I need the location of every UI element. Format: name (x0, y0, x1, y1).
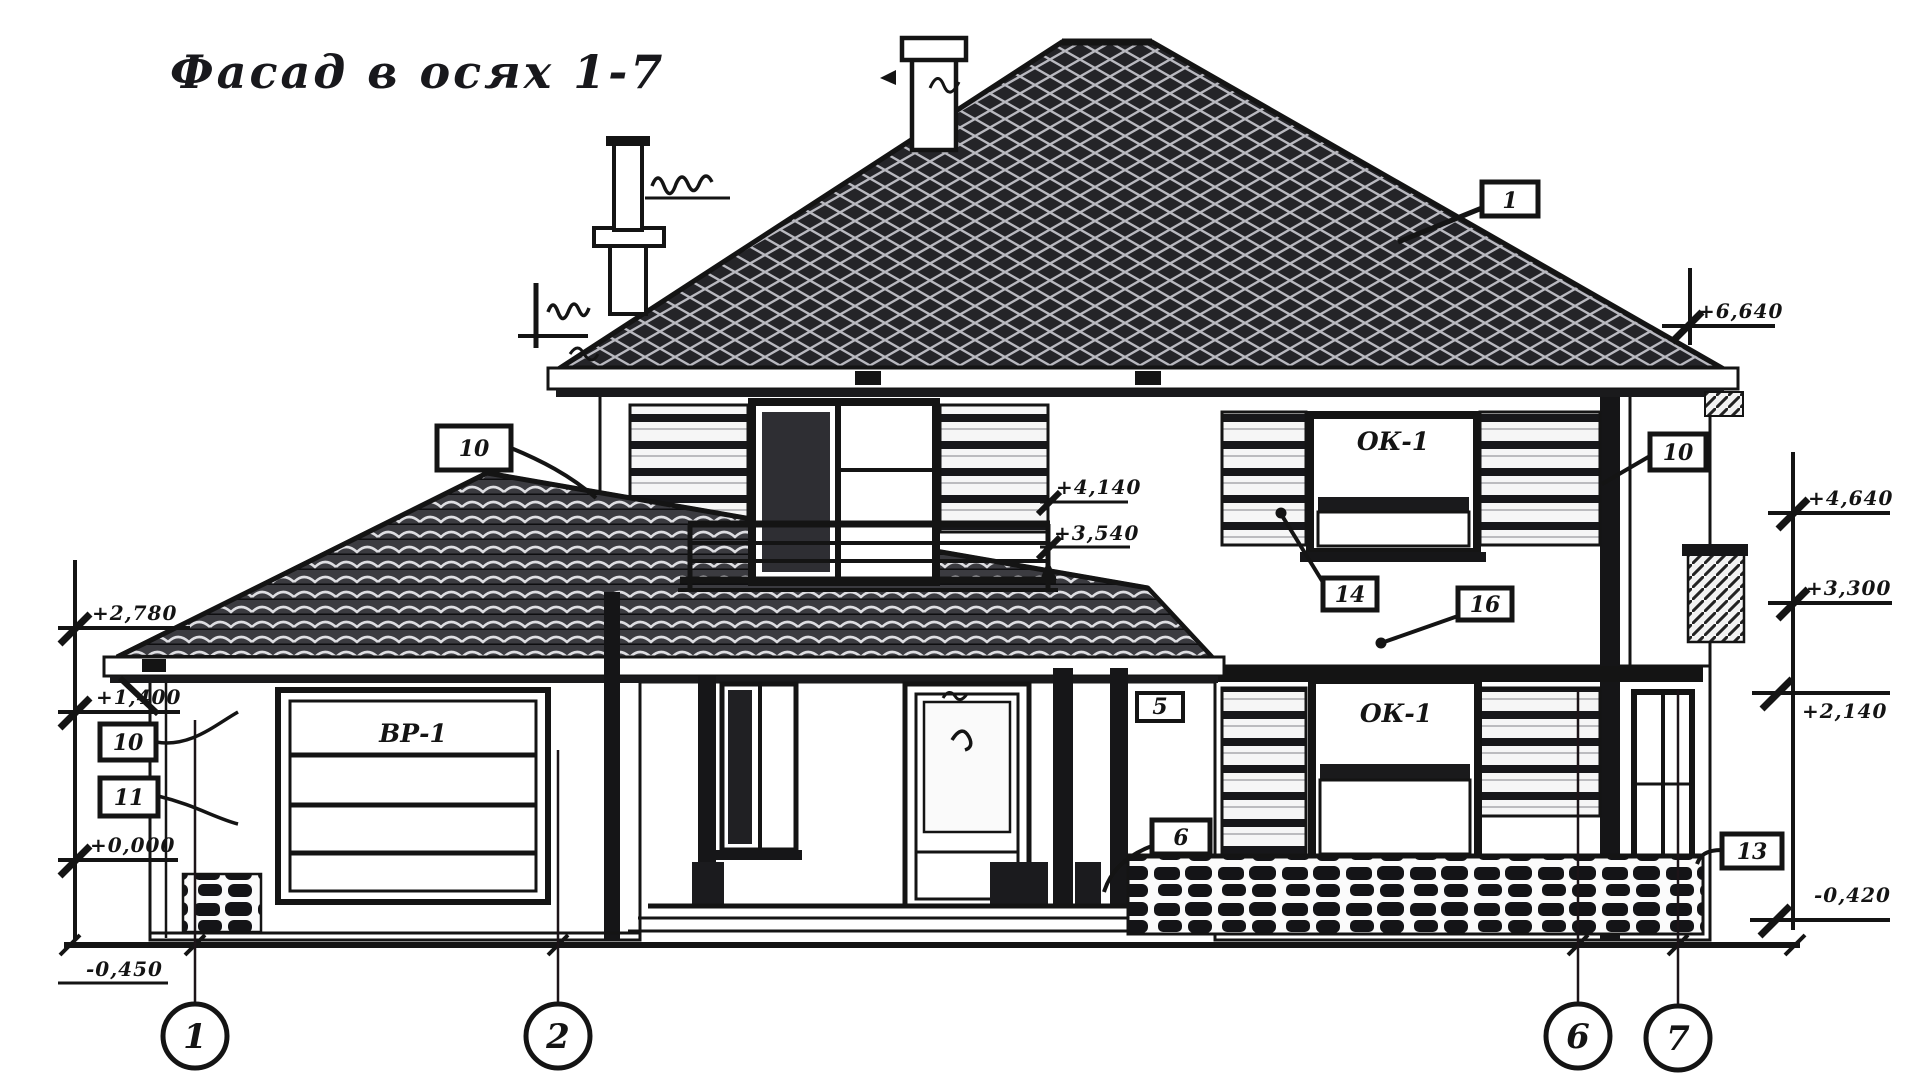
chimney (912, 58, 956, 150)
drawing-title: Фасад в осях 1-7 (170, 45, 665, 99)
callout-number: 10 (113, 730, 144, 756)
window-label: ОК-1 (1360, 699, 1432, 728)
eave-shadow (556, 389, 1724, 397)
porch-column (1053, 668, 1073, 906)
elevation-value: +3,540 (1054, 521, 1139, 545)
axis-marker-6: 6 (1546, 1004, 1610, 1068)
garage-door-label: ВР-1 (378, 719, 447, 748)
illegible-annotation (652, 176, 712, 194)
window-sill (714, 850, 802, 860)
chimney-left-base (610, 246, 646, 314)
corner-downpipe (604, 592, 620, 940)
elevation-value: +0,000 (90, 833, 175, 857)
callout-number: 10 (1663, 440, 1694, 466)
callout-number: 11 (114, 785, 145, 811)
elevation-value: +3,300 (1806, 576, 1891, 600)
callout-number: 1 (1502, 188, 1517, 214)
column-base (990, 862, 1048, 906)
callout-number: 6 (1173, 825, 1188, 851)
axis-number: 2 (545, 1017, 570, 1057)
elevation-value: +4,140 (1056, 475, 1141, 499)
window-first-floor-right: ОК-1 (1312, 680, 1478, 862)
eave-end-piece (1705, 392, 1743, 416)
callout-number: 5 (1152, 694, 1167, 720)
balcony-window-dark-sash (762, 412, 830, 572)
elevation-value: +2,140 (1802, 699, 1887, 723)
slat-band (1222, 412, 1306, 545)
axis-number: 6 (1566, 1017, 1590, 1057)
window-sill (1300, 552, 1486, 562)
side-window-dark-pane (728, 690, 752, 844)
axis-number: 1 (183, 1017, 207, 1057)
elevation-value: +1,400 (96, 685, 181, 709)
fascia-bracket (1135, 371, 1161, 385)
side-balcony (1688, 552, 1744, 642)
facade-drawing: ОК-1 (0, 0, 1905, 1080)
callout-number: 10 (459, 436, 490, 462)
elevation-value: +4,640 (1808, 486, 1893, 510)
chimney-cap (902, 38, 966, 60)
elevation-value: +6,640 (1698, 299, 1783, 323)
chimney-left-flue (614, 144, 642, 230)
facade-drawing-sheet: ОК-1 (0, 0, 1905, 1080)
column-base (1075, 862, 1101, 906)
window-label: ОК-1 (1357, 427, 1429, 456)
stone-plinth-band (1128, 856, 1703, 934)
callout-number: 13 (1737, 839, 1768, 865)
illegible-annotation (880, 70, 896, 85)
elevation-value: -0,420 (1814, 883, 1891, 907)
column-base (692, 862, 724, 906)
axis-marker-1: 1 (163, 1004, 227, 1068)
elevation-value: +2,780 (92, 601, 177, 625)
slat-band (1480, 412, 1600, 545)
door-glass (924, 702, 1010, 832)
illegible-annotation (548, 304, 589, 319)
axis-marker-7: 7 (1646, 1006, 1710, 1070)
fascia-bracket (855, 371, 881, 385)
axis-number: 7 (1666, 1019, 1690, 1059)
window-second-floor-right: ОК-1 (1300, 415, 1486, 562)
stone-base (1128, 856, 1703, 934)
fascia-bracket (142, 659, 166, 672)
slat-band (1222, 688, 1306, 862)
main-roof (548, 42, 1743, 416)
slat-band (1480, 688, 1600, 816)
callout-number: 14 (1335, 582, 1366, 608)
callout-number: 16 (1470, 592, 1501, 618)
lower-eave-shadow (110, 676, 1218, 683)
porch-column (1110, 668, 1128, 906)
elevation-value: -0,450 (86, 957, 163, 981)
main-roof-surface (560, 42, 1722, 368)
slat-band (940, 405, 1048, 532)
chimney-left-top (606, 136, 650, 146)
axis-marker-2: 2 (526, 1004, 590, 1068)
side-balcony-cap (1682, 544, 1748, 556)
